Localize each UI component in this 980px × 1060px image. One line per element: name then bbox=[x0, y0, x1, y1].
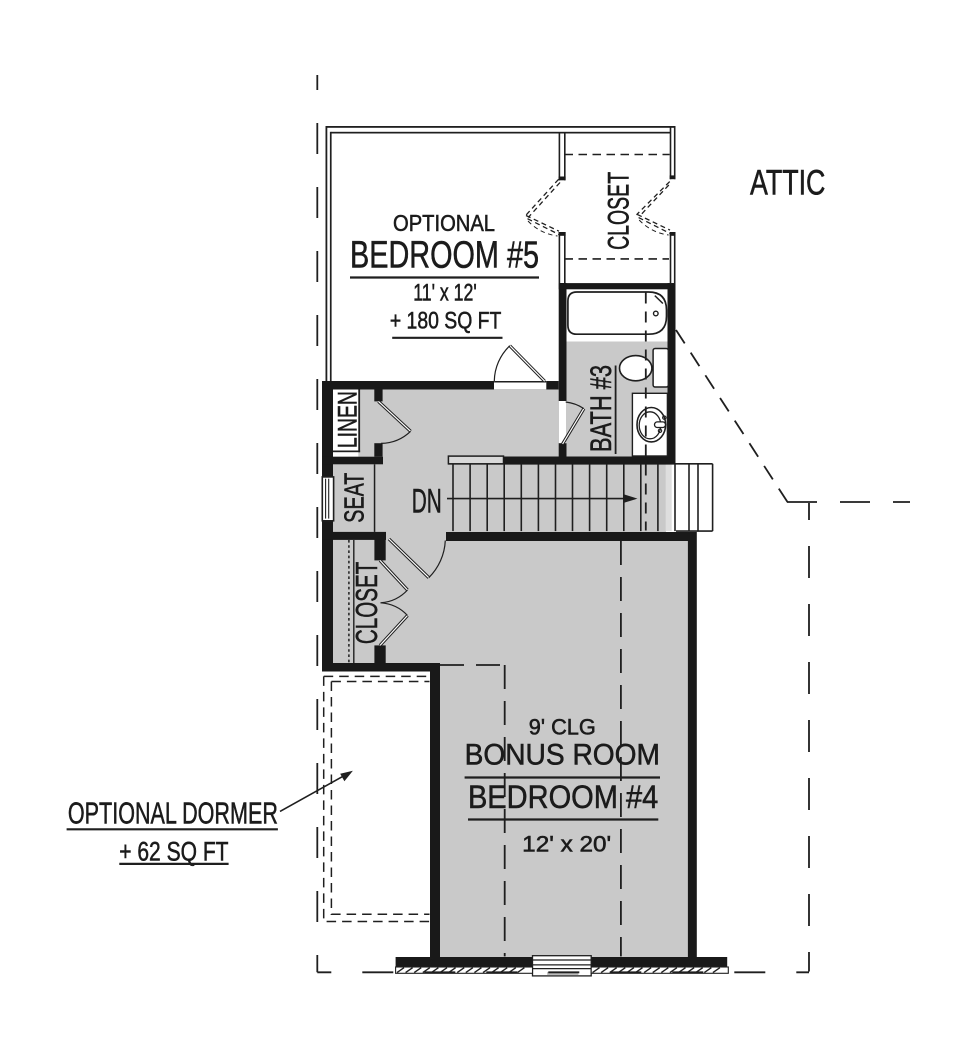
svg-text:BEDROOM #4: BEDROOM #4 bbox=[468, 779, 658, 815]
svg-text:12' x 20': 12' x 20' bbox=[522, 832, 611, 857]
svg-text:7: 7 bbox=[428, 957, 434, 968]
svg-text:BEDROOM #5: BEDROOM #5 bbox=[350, 235, 539, 277]
svg-text:ATTIC: ATTIC bbox=[750, 163, 826, 202]
svg-text:+ 62 SQ FT: + 62 SQ FT bbox=[119, 837, 228, 867]
svg-text:LINEN: LINEN bbox=[333, 391, 363, 448]
svg-text:11' x 12': 11' x 12' bbox=[413, 279, 477, 306]
svg-text:CLOSET: CLOSET bbox=[349, 562, 384, 645]
svg-text:+ 180 SQ FT: + 180 SQ FT bbox=[390, 308, 502, 335]
svg-text:OPTIONAL: OPTIONAL bbox=[393, 210, 495, 236]
svg-text:CLOSET: CLOSET bbox=[603, 172, 636, 250]
svg-text:9' CLG: 9' CLG bbox=[529, 715, 596, 740]
svg-text:SEAT: SEAT bbox=[339, 473, 370, 523]
svg-text:BONUS ROOM: BONUS ROOM bbox=[465, 738, 660, 771]
svg-text:BATH #3: BATH #3 bbox=[585, 365, 618, 452]
svg-text:DN: DN bbox=[412, 482, 442, 520]
svg-text:OPTIONAL DORMER: OPTIONAL DORMER bbox=[68, 796, 278, 831]
svg-text:7: 7 bbox=[686, 957, 692, 968]
